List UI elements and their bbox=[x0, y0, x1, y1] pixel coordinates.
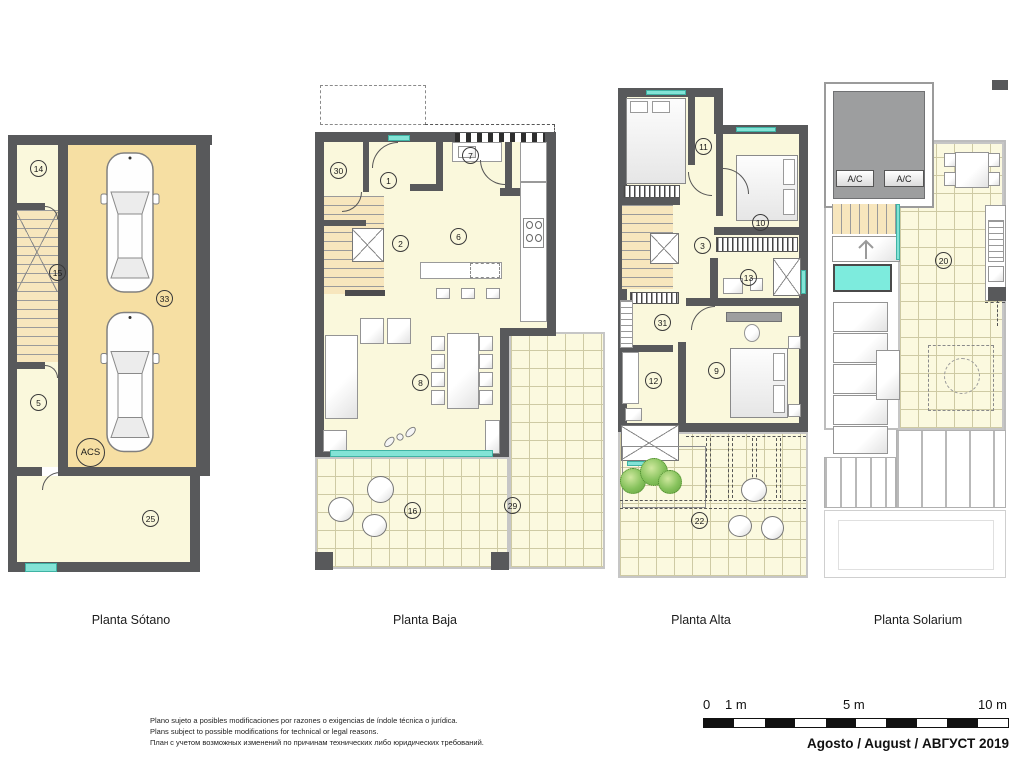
room-number: 2 bbox=[392, 235, 409, 252]
room-number: 7 bbox=[462, 147, 479, 164]
room-number: 16 bbox=[404, 502, 421, 519]
room-number: 22 bbox=[691, 512, 708, 529]
room-number: 1 bbox=[380, 172, 397, 189]
outdoor-chair bbox=[988, 153, 1000, 167]
disclaimer-line-ru: План с учетом возможных изменений по при… bbox=[150, 737, 530, 748]
room-number: 12 bbox=[645, 372, 662, 389]
plan-label-sotano: Planta Sótano bbox=[66, 613, 196, 627]
scale-bar-segments bbox=[703, 718, 1009, 728]
dashed-corner-line bbox=[985, 302, 1005, 303]
outdoor-chair bbox=[988, 172, 1000, 186]
jacuzzi bbox=[833, 264, 892, 292]
window bbox=[896, 204, 900, 260]
room-number: 5 bbox=[30, 394, 47, 411]
room-number: 29 bbox=[504, 497, 521, 514]
room-number: 15 bbox=[49, 264, 66, 281]
chimney-stub bbox=[992, 80, 1008, 90]
room-number: 30 bbox=[330, 162, 347, 179]
disclaimer-line-es: Plano sujeto a posibles modificaciones p… bbox=[150, 715, 530, 726]
room-number: 3 bbox=[694, 237, 711, 254]
scale-segment bbox=[978, 719, 1008, 727]
scale-segment bbox=[795, 719, 825, 727]
room-number: 10 bbox=[752, 214, 769, 231]
scale-segment bbox=[886, 719, 916, 727]
outdoor-table bbox=[955, 152, 989, 188]
disclaimer-text: Plano sujeto a posibles modificaciones p… bbox=[150, 715, 530, 748]
room-number: 11 bbox=[695, 138, 712, 155]
dashed-corner-line bbox=[997, 300, 998, 326]
coffee-table bbox=[876, 350, 900, 400]
room-number: 14 bbox=[30, 160, 47, 177]
bbq-block bbox=[988, 287, 1006, 301]
up-arrow-icon bbox=[846, 237, 886, 261]
scale-segment bbox=[947, 719, 977, 727]
room-number: 9 bbox=[708, 362, 725, 379]
room-number: 13 bbox=[740, 269, 757, 286]
room-number: 6 bbox=[450, 228, 467, 245]
scale-segment bbox=[826, 719, 856, 727]
future-jacuzzi-outline bbox=[944, 358, 980, 394]
outdoor-chair bbox=[944, 153, 956, 167]
date-line: Agosto / August / АВГУСТ 2019 bbox=[700, 736, 1009, 751]
scale-tick-label: 0 bbox=[703, 697, 710, 712]
room-number: 8 bbox=[412, 374, 429, 391]
plan-planta-solarium: A/C A/C bbox=[0, 0, 1024, 768]
scale-segment bbox=[856, 719, 886, 727]
room-number: 25 bbox=[142, 510, 159, 527]
scale-tick-label: 1 m bbox=[725, 697, 747, 712]
scale-tick-label: 10 m bbox=[978, 697, 1007, 712]
plan-label-solarium: Planta Solarium bbox=[853, 613, 983, 627]
room-number: 33 bbox=[156, 290, 173, 307]
lower-roof-inner bbox=[838, 520, 994, 570]
floor-plan-sheet: 14 15 33 5 ACS 25 bbox=[0, 0, 1024, 768]
scale-segment bbox=[734, 719, 764, 727]
scale-segment bbox=[704, 719, 734, 727]
disclaimer-line-en: Plans subject to possible modifications … bbox=[150, 726, 530, 737]
plan-label-alta: Planta Alta bbox=[636, 613, 766, 627]
room-number: 31 bbox=[654, 314, 671, 331]
outdoor-chair bbox=[944, 172, 956, 186]
room-number: 20 bbox=[935, 252, 952, 269]
outdoor-sink bbox=[988, 266, 1004, 282]
ac-unit: A/C bbox=[836, 170, 874, 187]
plan-label-baja: Planta Baja bbox=[360, 613, 490, 627]
scale-segment bbox=[765, 719, 795, 727]
acs-label: ACS bbox=[76, 438, 105, 467]
scale-tick-label: 5 m bbox=[843, 697, 865, 712]
lounge-seat bbox=[833, 426, 888, 454]
stair-landing bbox=[832, 236, 900, 262]
staircase bbox=[832, 204, 900, 234]
scale-segment bbox=[917, 719, 947, 727]
ac-unit: A/C bbox=[884, 170, 924, 187]
grill bbox=[988, 220, 1004, 262]
pergola-slats bbox=[824, 457, 896, 508]
lounge-seat bbox=[833, 302, 888, 332]
pergola-slats bbox=[896, 430, 1006, 508]
